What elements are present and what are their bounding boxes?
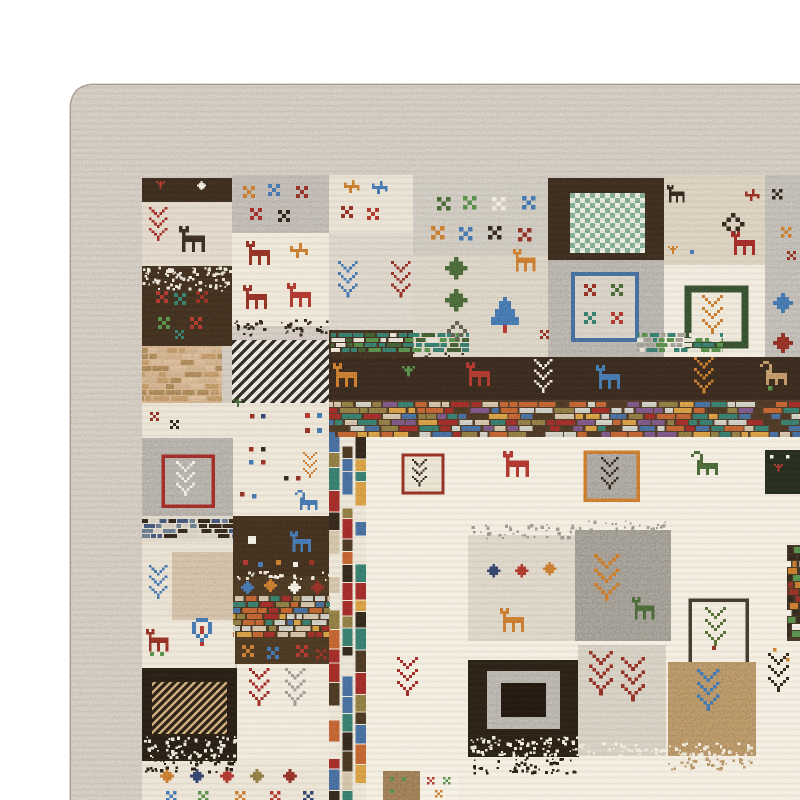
rug-image <box>0 0 800 800</box>
weave-streak-overlay <box>70 84 800 800</box>
rug-weave <box>70 84 800 800</box>
rug-photo <box>0 0 800 800</box>
